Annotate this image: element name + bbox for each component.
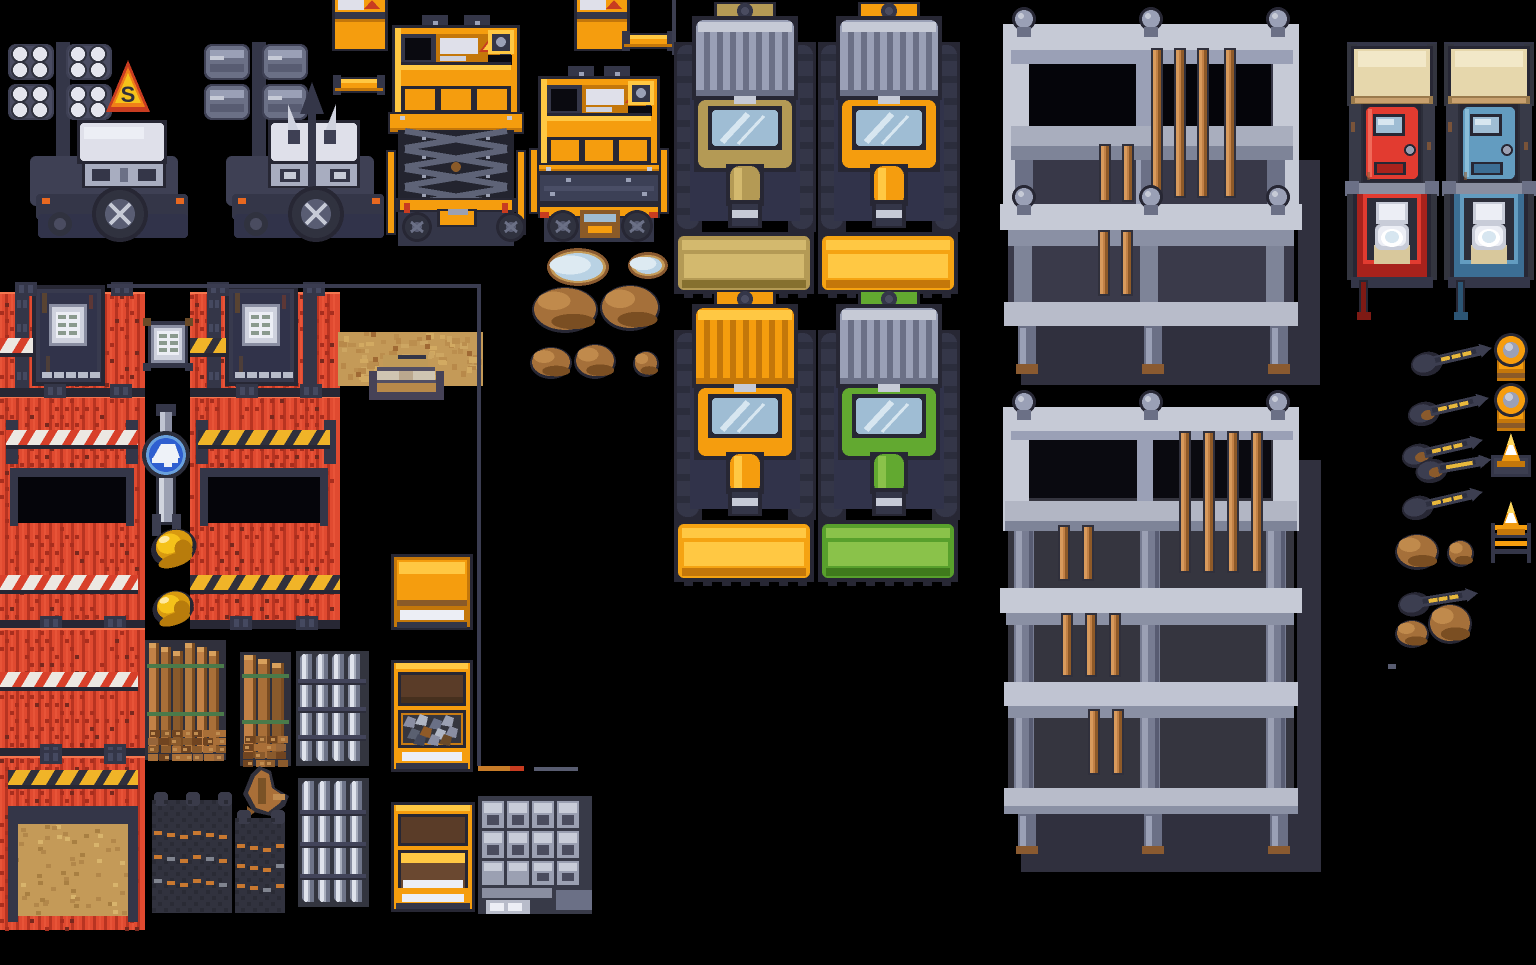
svg-text:S: S xyxy=(121,82,136,107)
